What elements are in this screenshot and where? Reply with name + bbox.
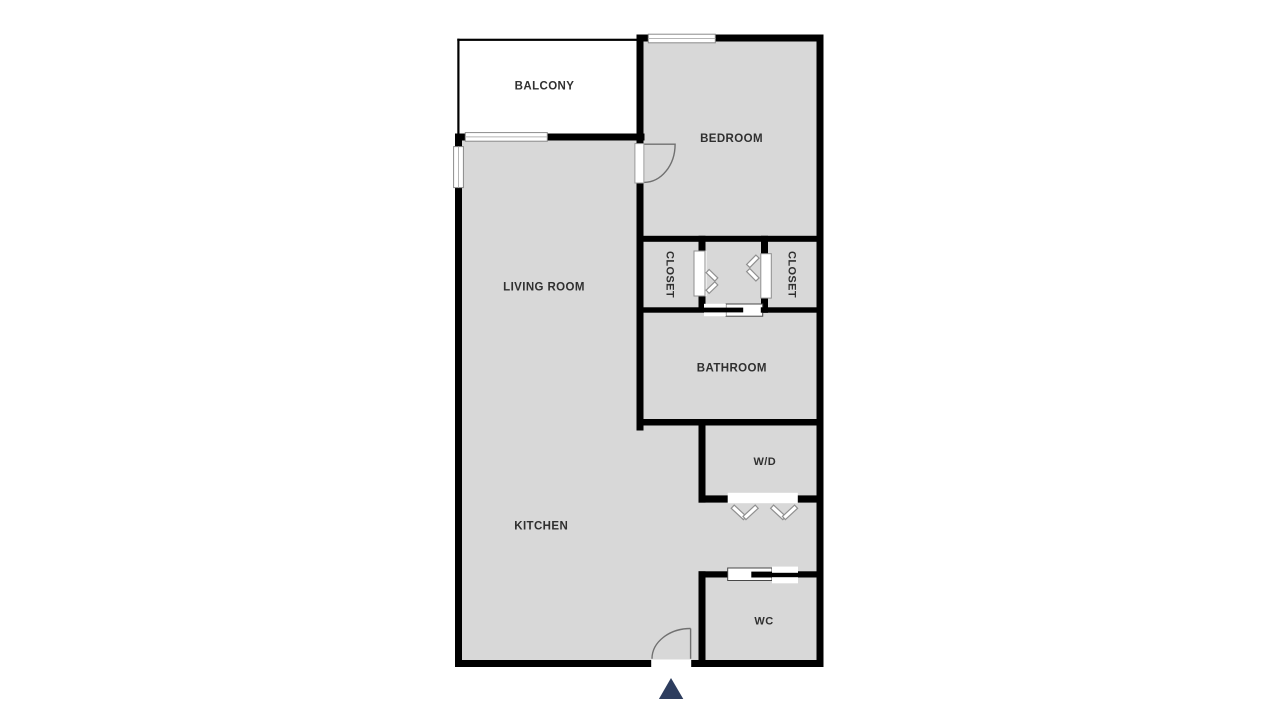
svg-text:CLOSET: CLOSET: [786, 251, 798, 298]
svg-text:BATHROOM: BATHROOM: [697, 363, 767, 375]
svg-text:WC: WC: [754, 616, 773, 628]
svg-text:BALCONY: BALCONY: [515, 81, 575, 93]
svg-text:LIVING ROOM: LIVING ROOM: [503, 281, 585, 293]
svg-text:KITCHEN: KITCHEN: [514, 521, 568, 533]
svg-text:W/D: W/D: [754, 456, 777, 468]
svg-text:BEDROOM: BEDROOM: [700, 133, 763, 145]
svg-text:CLOSET: CLOSET: [664, 251, 676, 298]
